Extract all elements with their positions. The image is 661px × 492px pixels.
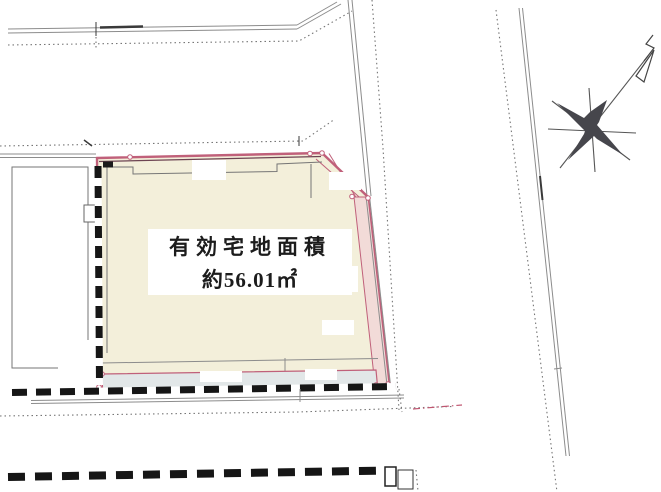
adjacent-building-west — [0, 154, 98, 382]
area-label-title: 有効宅地面積 — [169, 231, 331, 261]
north-arrow-icon — [548, 35, 654, 172]
site-plan-canvas: 有効宅地面積 約56.01㎡ — [0, 0, 661, 492]
parcel-area-label: 有効宅地面積 約56.01㎡ — [148, 229, 352, 295]
area-label-value: 約56.01㎡ — [202, 264, 298, 294]
far-south-fence — [8, 467, 418, 491]
east-road — [496, 8, 570, 492]
north-road — [8, 2, 352, 48]
north-boundary-dotted-line — [0, 119, 335, 146]
